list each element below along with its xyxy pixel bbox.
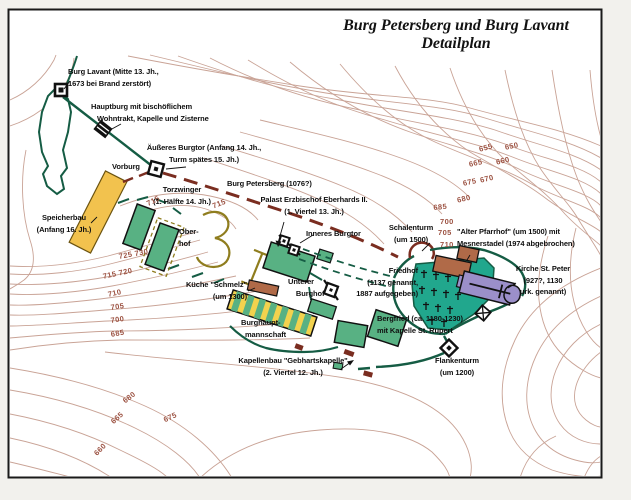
detailplan-page: Burg Petersberg und Burg Lavant Detailpl… [0,0,631,500]
map-title-line2: Detailplan [343,35,569,53]
map-title: Burg Petersberg und Burg Lavant Detailpl… [343,17,569,53]
map-frame [9,10,602,478]
aeusseres-burgtor-icon [148,161,164,177]
lavant-tower-icon [55,84,67,96]
map-title-line1: Burg Petersberg und Burg Lavant [343,17,569,35]
detailplan-map [0,0,631,500]
kapelle-st-rupert-building [334,321,367,348]
